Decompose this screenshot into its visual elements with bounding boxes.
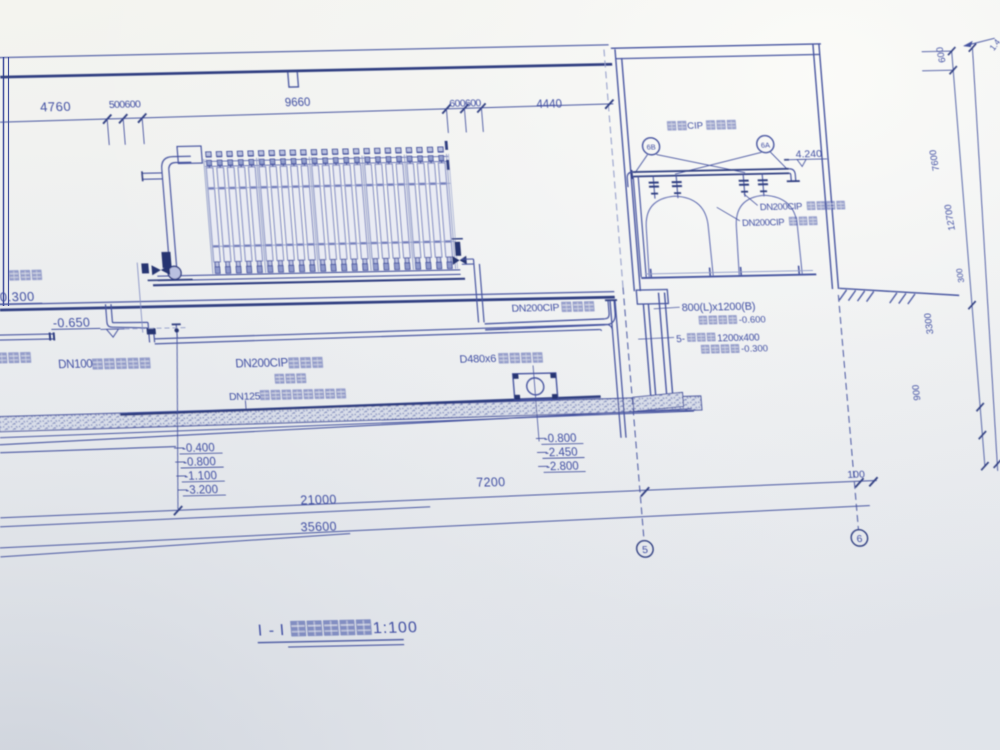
svg-text:-0.650: -0.650 xyxy=(52,316,90,331)
svg-text:D480x6: D480x6 xyxy=(459,353,497,366)
svg-text:600600: 600600 xyxy=(449,97,482,110)
svg-text:DN200CIP: DN200CIP xyxy=(742,217,785,229)
svg-text:1:100: 1:100 xyxy=(372,618,418,637)
svg-text:DN200CIP: DN200CIP xyxy=(759,202,802,214)
svg-text:9660: 9660 xyxy=(284,97,311,110)
svg-text:100: 100 xyxy=(847,469,866,481)
svg-text:4440: 4440 xyxy=(536,98,563,111)
svg-text:21000: 21000 xyxy=(300,493,337,508)
svg-text:6B: 6B xyxy=(646,143,656,152)
svg-text:-0.300: -0.300 xyxy=(741,343,769,355)
svg-text:DN100: DN100 xyxy=(58,359,93,372)
svg-text:4760: 4760 xyxy=(40,99,72,115)
svg-text:-0.600: -0.600 xyxy=(738,314,766,326)
svg-text:DN200CIP: DN200CIP xyxy=(511,302,560,315)
svg-text:DN125: DN125 xyxy=(229,390,262,403)
svg-text:35600: 35600 xyxy=(300,520,337,535)
svg-text:DN200CIP: DN200CIP xyxy=(235,358,289,371)
svg-text:7200: 7200 xyxy=(476,475,506,490)
svg-text:5: 5 xyxy=(642,544,649,556)
svg-text:500600: 500600 xyxy=(108,98,141,111)
svg-text:6A: 6A xyxy=(760,140,770,149)
svg-text:6: 6 xyxy=(856,533,863,545)
svg-text:800(L)x1200(B): 800(L)x1200(B) xyxy=(681,301,755,315)
svg-text:0.300: 0.300 xyxy=(0,289,35,305)
svg-text:CIP: CIP xyxy=(687,120,704,131)
svg-text:900: 900 xyxy=(910,384,923,401)
svg-text:1200x400: 1200x400 xyxy=(717,333,761,345)
svg-text:5-: 5- xyxy=(676,334,686,345)
